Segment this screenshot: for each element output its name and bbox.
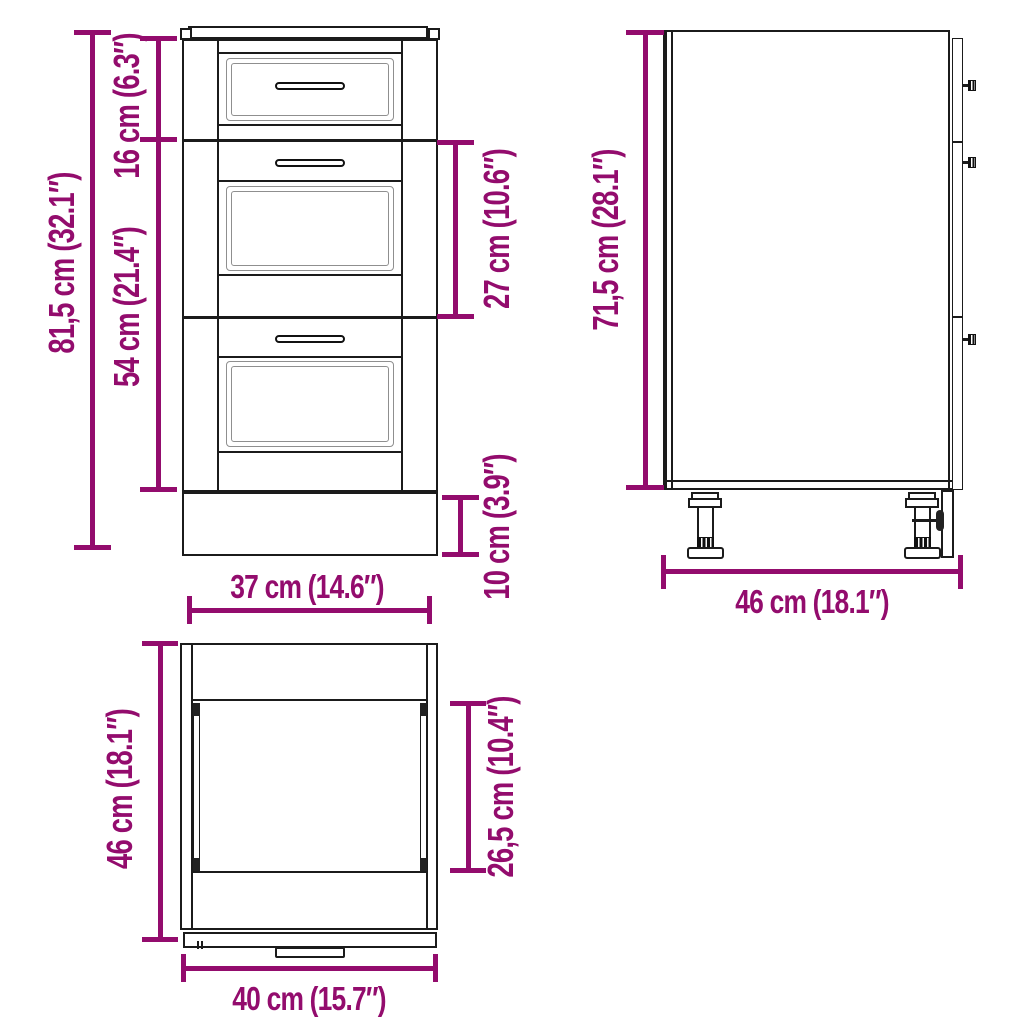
front-edge-inner-line: [671, 32, 673, 488]
foot-left-base: [687, 547, 724, 559]
drawer3-panel-bottom-line: [219, 451, 401, 453]
screw-icon: [197, 941, 199, 949]
drawer-rail-left-end: [193, 858, 200, 871]
drawer3-panel-inner: [231, 366, 389, 442]
back-strip-divider-1: [953, 141, 962, 143]
drawer-rail-left-end: [193, 703, 200, 716]
dim-line-body-height: [643, 32, 648, 488]
dim-tick: [626, 485, 664, 490]
dim-line-front-width: [189, 608, 429, 613]
drawer2-panel-bottom-line: [219, 274, 401, 276]
drawer-divider-2: [182, 316, 438, 319]
dim-tick: [140, 487, 177, 492]
dim-line-top-width: [183, 966, 437, 971]
top-view-body: [180, 643, 438, 930]
opening-bottom-line: [192, 871, 427, 873]
drawer1-handle: [275, 82, 345, 90]
dim-tick: [187, 596, 192, 624]
dim-tick: [626, 30, 664, 35]
handle-top-view: [275, 947, 345, 958]
dim-tick: [142, 641, 178, 646]
foot-left-leg: [697, 506, 714, 539]
dim-tick: [437, 314, 474, 319]
stile-line-left: [217, 41, 219, 490]
drawer-rail-right-end: [420, 703, 427, 716]
drawer-rail-right-end: [420, 858, 427, 871]
dim-tick: [437, 140, 474, 145]
dim-line-inner-depth: [466, 703, 471, 871]
dim-line-top-drawer: [156, 38, 161, 140]
dim-tick: [442, 495, 479, 500]
drawer2-panel-inner: [231, 191, 389, 266]
side-bottom-panel-line: [665, 480, 948, 482]
screw-icon: [968, 80, 976, 91]
dim-tick: [181, 954, 186, 982]
foot-right-leg: [914, 506, 931, 539]
drawer3-panel-top-line: [219, 356, 401, 358]
dim-line-plinth: [458, 497, 463, 555]
dim-tick: [74, 545, 111, 550]
dim-tick: [433, 954, 438, 982]
drawer-rail-left: [193, 703, 200, 871]
screw-icon: [201, 941, 203, 949]
screw-icon: [968, 157, 976, 168]
drawer3-handle: [275, 335, 345, 343]
stile-line-right: [401, 41, 403, 490]
foot-adjuster-knob: [936, 510, 944, 531]
side-body: [663, 30, 950, 490]
countertop: [188, 26, 428, 39]
drawer-rail-right: [420, 703, 427, 871]
cabinet-dimension-diagram: 81,5 cm (32.1″) 16 cm (6.3″) 54 cm (21.4…: [0, 0, 1024, 1024]
drawer-divider-1: [182, 139, 438, 142]
dim-tick: [661, 555, 666, 589]
screw-icon: [968, 334, 976, 345]
dim-line-top-depth: [158, 643, 163, 940]
back-panel-line: [192, 699, 427, 701]
dim-line-height-total: [90, 32, 95, 548]
dim-tick: [442, 552, 479, 557]
dim-tick: [142, 937, 178, 942]
dim-line-lower-drawers: [156, 140, 161, 490]
drawer1-panel-bottom-line: [219, 124, 401, 126]
dim-tick: [427, 596, 432, 624]
drawer1-panel-top-line: [219, 52, 401, 54]
dim-tick: [958, 555, 963, 589]
foot-right-base: [904, 547, 941, 559]
drawer2-panel-top-line: [219, 180, 401, 182]
back-strip-upper: [952, 38, 963, 490]
front-panel-top-view: [183, 932, 437, 948]
plinth: [182, 492, 438, 556]
dim-line-side-depth: [663, 569, 962, 574]
drawer2-handle: [275, 159, 345, 167]
dim-line-middle-drawer: [453, 142, 458, 317]
back-strip-divider-2: [953, 316, 962, 318]
